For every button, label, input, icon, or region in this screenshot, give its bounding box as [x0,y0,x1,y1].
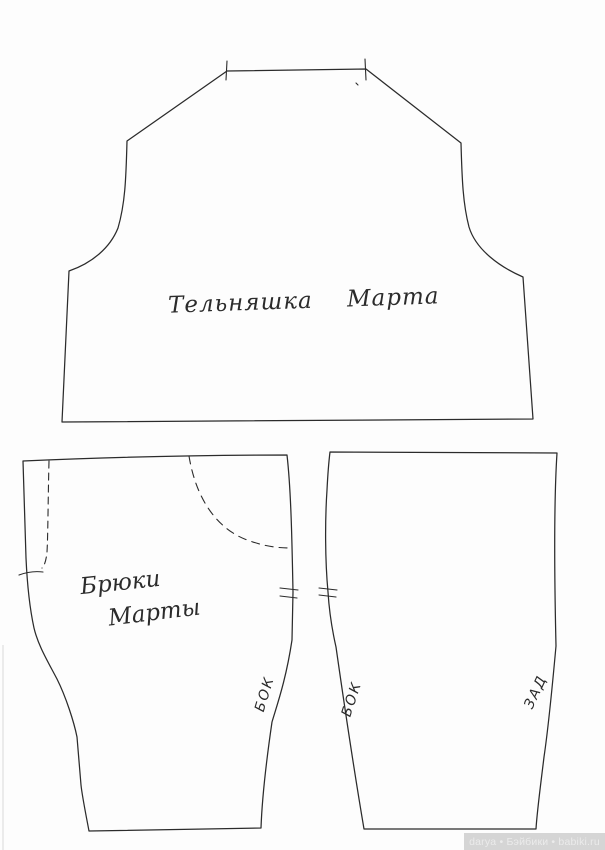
trousers-front-outline [23,455,293,831]
pocket-dashed-curve [189,456,290,548]
watermark-bar: darya • Бэйбики • babiki.ru [464,833,605,850]
shirt-piece-outline [62,69,533,422]
pattern-sheet: Тельняшка Марта Брюки Марты БОК БОК ЗАД … [0,0,605,850]
neckline-notch-right [365,59,366,80]
trousers-back-piece [319,452,557,829]
shirt-pattern-piece [62,59,533,422]
pocket-bottom-line [19,572,43,575]
side-seam-notch-marks-front [280,588,298,598]
neckline-notch-left [226,61,227,80]
watermark-text: darya • Бэйбики • babiki.ru [469,836,600,848]
scan-artifact-streak [2,645,4,850]
fly-dashed-line [42,461,49,568]
neckline-dot-mark [356,83,358,85]
pattern-drawing [0,0,605,850]
trousers-front-piece [19,455,298,831]
trousers-back-outline [326,452,557,829]
